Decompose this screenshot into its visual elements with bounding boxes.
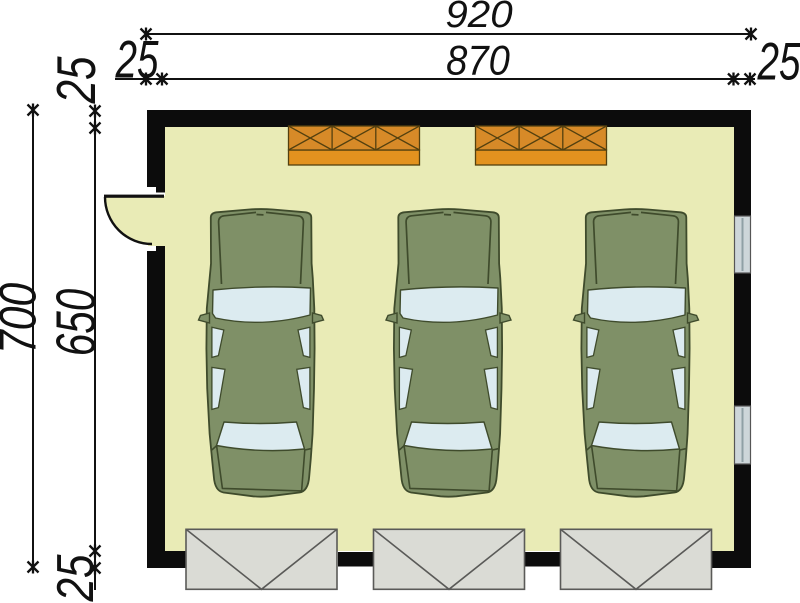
svg-text:650: 650 [46, 289, 108, 357]
svg-text:25: 25 [757, 32, 800, 91]
svg-text:25: 25 [47, 554, 105, 603]
svg-text:25: 25 [47, 56, 107, 105]
svg-text:700: 700 [0, 282, 48, 354]
svg-text:25: 25 [115, 30, 159, 89]
svg-text:920: 920 [445, 0, 512, 36]
svg-text:870: 870 [446, 38, 510, 84]
